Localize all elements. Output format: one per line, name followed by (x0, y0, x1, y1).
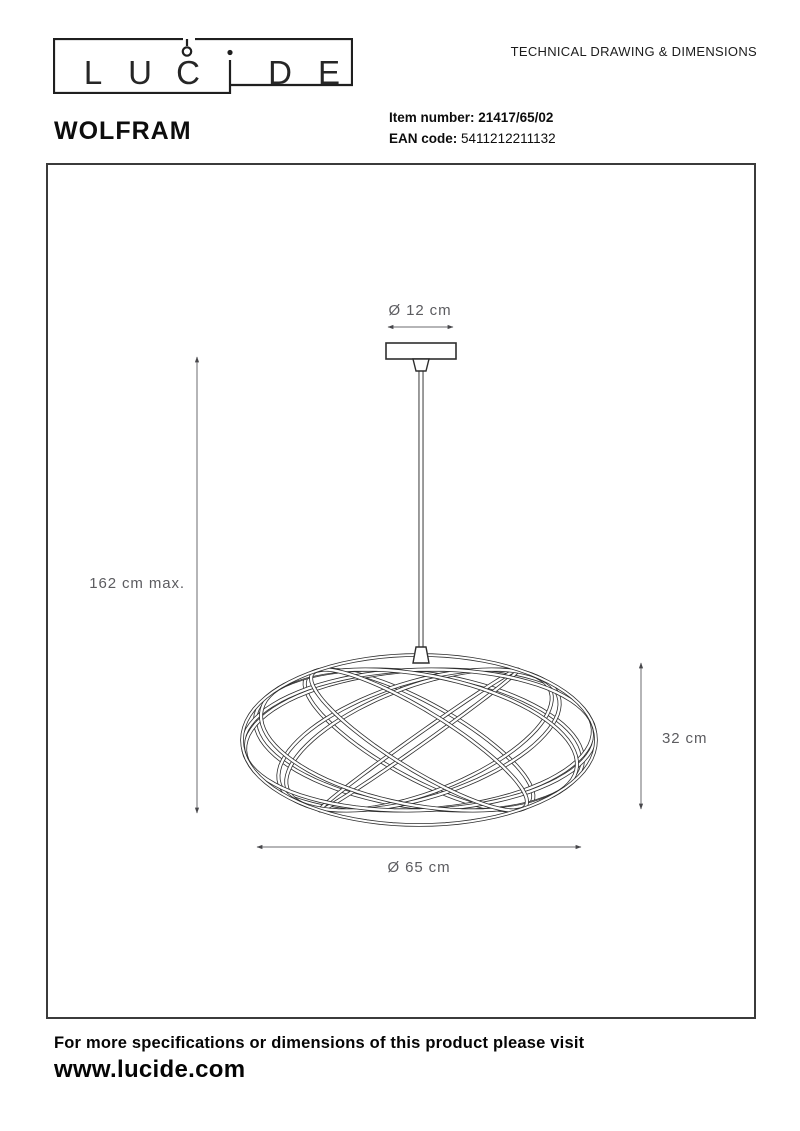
lucide-logo-art: L U C D E (53, 38, 353, 94)
logo-letter-d: D (268, 54, 292, 91)
footer: For more specifications or dimensions of… (54, 1034, 584, 1084)
ean-code-row: EAN code: 5411212211132 (389, 128, 556, 149)
logo-letter-l: L (84, 54, 102, 91)
lucide-logo: L U C D E (53, 38, 353, 94)
footer-text: For more specifications or dimensions of… (54, 1034, 584, 1053)
item-number-value: 21417/65/02 (478, 110, 553, 125)
logo-letter-u: U (128, 54, 152, 91)
page-title: TECHNICAL DRAWING & DIMENSIONS (511, 44, 757, 59)
drawing-frame (46, 163, 756, 1019)
website-link[interactable]: www.lucide.com (54, 1056, 584, 1084)
ean-code-label: EAN code: (389, 131, 457, 146)
item-number-row: Item number: 21417/65/02 (389, 107, 556, 128)
product-name: WOLFRAM (54, 117, 192, 146)
item-number-label: Item number: (389, 110, 475, 125)
technical-drawing-page: { "logo": { "brand": "LUCIDE", "letters"… (0, 0, 800, 1131)
product-identifiers: Item number: 21417/65/02 EAN code: 54112… (389, 107, 556, 149)
logo-letter-c: C (176, 54, 200, 91)
logo-i-dot-icon (227, 50, 232, 55)
ean-code-value: 5411212211132 (461, 131, 556, 146)
logo-letter-e: E (318, 54, 340, 91)
